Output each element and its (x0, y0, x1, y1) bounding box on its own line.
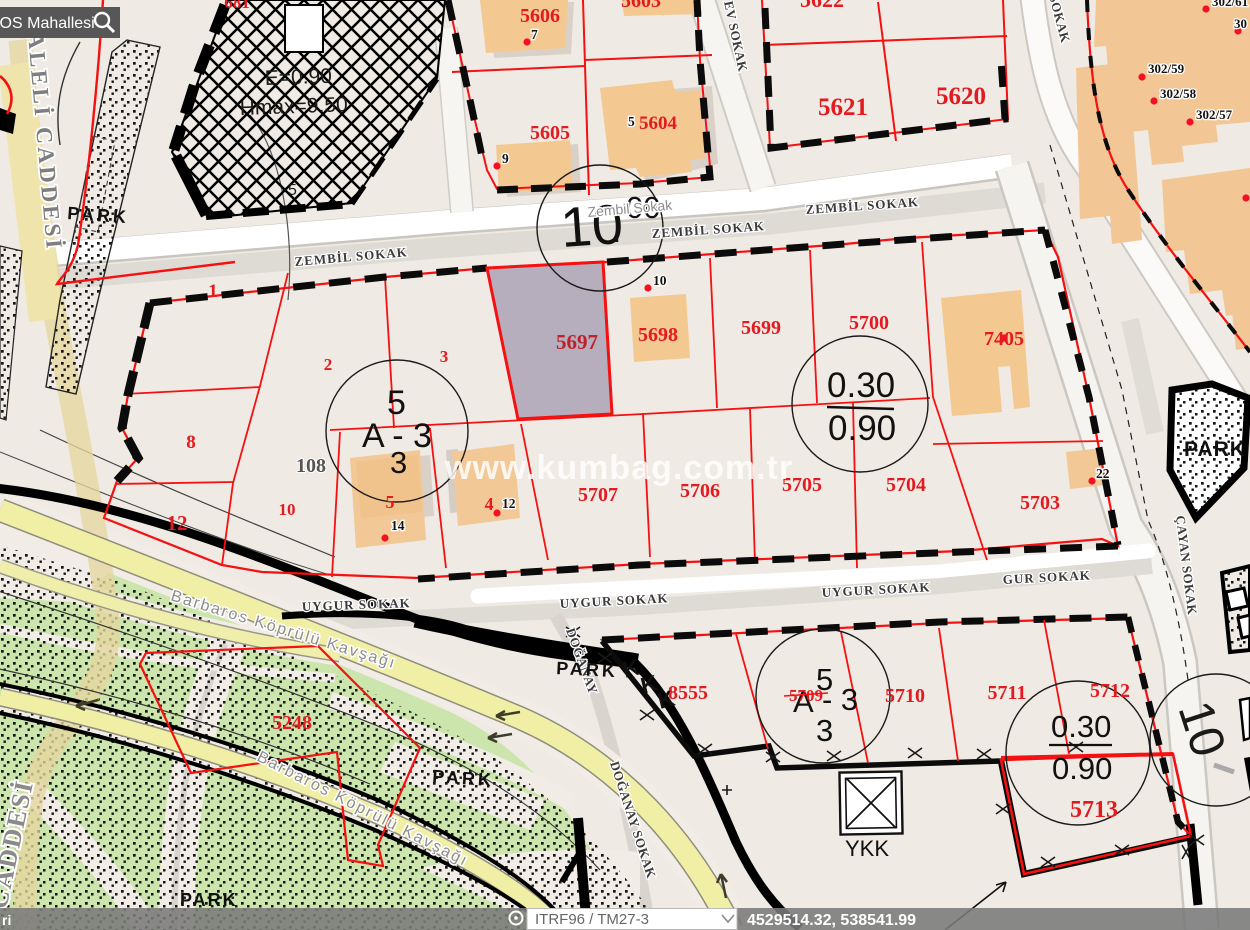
svg-text:5604: 5604 (639, 113, 678, 134)
svg-text:ITRF96 / TM27-3: ITRF96 / TM27-3 (535, 911, 649, 928)
svg-text:YKK: YKK (845, 836, 889, 861)
svg-text:302/57: 302/57 (1196, 107, 1233, 122)
svg-text:5710: 5710 (885, 685, 925, 707)
svg-text:5: 5 (288, 182, 297, 199)
svg-text:5622: 5622 (800, 0, 844, 12)
svg-text:5697: 5697 (556, 330, 598, 354)
svg-text:- 3: - 3 (822, 682, 858, 717)
svg-text:5603: 5603 (621, 0, 661, 12)
svg-text:8555: 8555 (668, 682, 708, 704)
svg-text:302/61: 302/61 (1212, 0, 1248, 9)
svg-text:5248: 5248 (272, 712, 312, 734)
svg-text:5700: 5700 (849, 312, 889, 334)
svg-text:8: 8 (186, 432, 196, 453)
svg-text:www.kumbag.com.tr: www.kumbag.com.tr (444, 449, 793, 487)
svg-text:5: 5 (386, 492, 395, 512)
svg-text:Hmax=9.50: Hmax=9.50 (239, 93, 348, 120)
svg-text:ri: ri (2, 912, 11, 928)
svg-text:7: 7 (531, 27, 538, 42)
svg-text:E=0.90: E=0.90 (264, 65, 332, 90)
svg-text:3: 3 (390, 445, 407, 480)
svg-text:5605: 5605 (530, 122, 570, 144)
svg-text:1: 1 (208, 281, 218, 302)
svg-text:108: 108 (296, 455, 326, 477)
svg-text:5713: 5713 (1070, 797, 1118, 823)
svg-text:.: . (613, 217, 621, 248)
svg-text:4529514.32, 538541.99: 4529514.32, 538541.99 (747, 912, 916, 929)
svg-text:5703: 5703 (1020, 492, 1060, 514)
svg-text:5707: 5707 (578, 484, 618, 506)
svg-text:302/59: 302/59 (1148, 61, 1185, 76)
svg-text:10: 10 (653, 273, 667, 288)
svg-text:302/58: 302/58 (1160, 86, 1197, 101)
svg-text:PARK: PARK (556, 658, 619, 681)
svg-text:5704: 5704 (886, 474, 926, 496)
svg-text:5620: 5620 (936, 83, 986, 110)
svg-text:3: 3 (440, 347, 449, 366)
svg-text:12: 12 (167, 511, 188, 535)
svg-text:30: 30 (1234, 16, 1247, 31)
svg-text:0.90: 0.90 (1052, 751, 1112, 786)
svg-text:12: 12 (502, 496, 516, 511)
svg-text:5698: 5698 (638, 324, 678, 346)
svg-text:5699: 5699 (741, 317, 781, 339)
svg-text:2: 2 (324, 355, 333, 374)
svg-text:9: 9 (502, 151, 509, 166)
svg-text:5: 5 (628, 114, 635, 129)
svg-text:681: 681 (224, 0, 250, 12)
svg-text:0.30: 0.30 (827, 366, 895, 405)
svg-text:0.30: 0.30 (1051, 709, 1111, 744)
svg-text:14: 14 (391, 518, 405, 533)
svg-text:4: 4 (485, 494, 494, 514)
svg-text:PARK: PARK (1184, 438, 1246, 461)
svg-text:7405: 7405 (984, 328, 1024, 350)
svg-text:0.90: 0.90 (828, 409, 896, 448)
svg-text:3: 3 (816, 713, 833, 748)
svg-text:5621: 5621 (818, 94, 868, 121)
svg-text:5606: 5606 (520, 5, 560, 27)
svg-text:10: 10 (279, 500, 296, 519)
svg-text:5712: 5712 (1090, 680, 1130, 702)
svg-text:22: 22 (1096, 466, 1110, 481)
svg-text:PARK: PARK (180, 890, 238, 910)
svg-text:ROS Mahallesi: ROS Mahallesi (0, 15, 95, 32)
svg-text:5711: 5711 (988, 682, 1027, 704)
